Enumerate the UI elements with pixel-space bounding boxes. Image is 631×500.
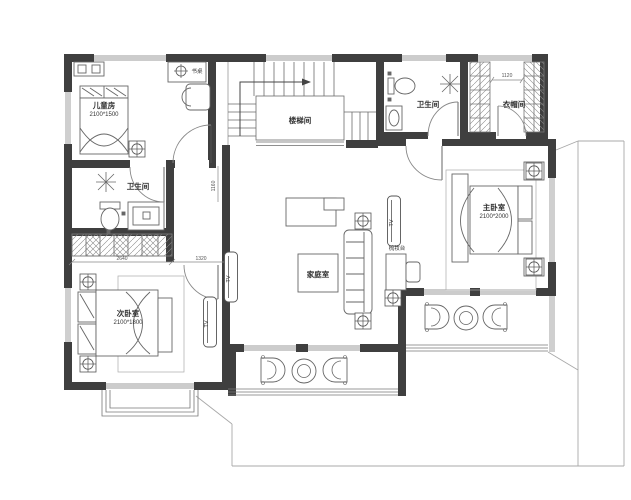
second-bedroom — [72, 234, 218, 372]
master-bedroom — [386, 146, 544, 290]
ceiling-light-icon — [526, 163, 542, 179]
ceiling-light-icon — [355, 313, 371, 329]
balcony-center — [261, 356, 347, 385]
ceiling-light-icon — [80, 274, 96, 290]
dressing-table-label: 梳妆台 — [389, 244, 406, 252]
ceiling-light-icon — [129, 141, 145, 157]
children-room-label: 儿童房 — [92, 100, 116, 110]
second-bedroom-label: 次卧室 — [117, 308, 140, 318]
master-bed — [461, 186, 533, 254]
sofa — [344, 230, 372, 314]
bathroom-left — [100, 167, 164, 233]
bay-window — [102, 390, 198, 416]
balcony-chair — [425, 303, 449, 332]
tv-label: TV — [389, 219, 395, 226]
second-bedroom-door — [184, 265, 218, 299]
toilet — [388, 72, 415, 101]
family-room-label: 家庭室 — [307, 269, 330, 279]
balcony-right — [425, 303, 507, 332]
shower-tray — [128, 202, 164, 230]
shower-head-icon — [96, 172, 116, 192]
children-door — [173, 125, 211, 163]
cloakroom-door — [498, 106, 526, 136]
balcony-chair — [261, 356, 285, 385]
ceiling-light-icon — [526, 259, 542, 275]
dim-entry-width: 1320 — [195, 256, 206, 262]
balcony-chair — [483, 303, 507, 332]
desk-label: 书桌 — [191, 67, 203, 75]
side-cabinet — [286, 198, 344, 226]
desk — [168, 62, 210, 110]
master-bedroom-label: 主卧室 — [483, 202, 506, 212]
children-room-size: 2100*1500 — [89, 112, 119, 118]
dressing-table — [386, 254, 420, 290]
cloakroom-label: 衣帽间 — [503, 99, 526, 109]
terrace-outline — [196, 141, 624, 466]
dim-corridor-width: 1160 — [211, 180, 217, 191]
stairwell — [228, 62, 376, 146]
ceiling-light-icon — [385, 290, 401, 306]
floor-plan-page: 楼梯间 书桌 儿童房 2100*1500 — [0, 0, 631, 500]
tv-label: TV — [204, 320, 210, 327]
master-door — [406, 146, 442, 180]
bath-right-label: 卫生间 — [417, 99, 440, 109]
shoe-cabinet — [74, 62, 104, 76]
sink — [386, 106, 402, 130]
ceiling-light-icon — [80, 356, 96, 372]
dimension-line — [69, 259, 233, 265]
dim-cloakroom-width: 1120 — [502, 73, 513, 79]
balcony-table — [454, 306, 478, 330]
balcony-chair — [323, 356, 347, 385]
second-bedroom-size: 2100*1800 — [113, 320, 143, 326]
shower-head-icon — [440, 74, 460, 94]
ceiling-light-icon — [355, 213, 371, 229]
master-bedroom-size: 2100*2000 — [479, 214, 509, 220]
dim-closet-width: 2640 — [116, 256, 127, 262]
bath-left-label: 卫生间 — [127, 181, 150, 191]
floor-plan-canvas: 楼梯间 书桌 儿童房 2100*1500 — [0, 0, 631, 500]
stairwell-label: 楼梯间 — [289, 115, 312, 125]
balcony-table — [292, 359, 316, 383]
tv-label: TV — [226, 275, 232, 282]
closet-hatched — [72, 234, 172, 256]
children-bed — [80, 86, 128, 154]
